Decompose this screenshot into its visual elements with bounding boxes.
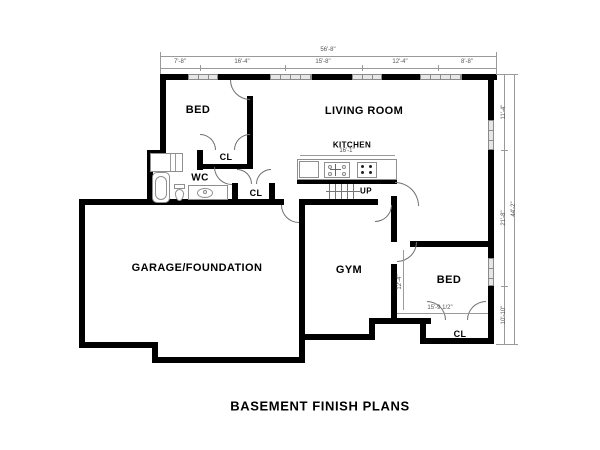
dim-top-seg-4: 12'-4" — [392, 59, 407, 65]
dim-tick — [501, 150, 508, 151]
basement-floor-plan: BED LIVING ROOM KITCHEN CL WC CL UP GARA… — [0, 0, 600, 450]
dim-line-top-overall — [160, 56, 497, 57]
room-label-bed-upper: BED — [186, 104, 210, 116]
wall-gym-top — [299, 199, 374, 205]
stove-divider — [335, 164, 336, 176]
utility-cabinet-line — [170, 154, 171, 171]
dim-tick — [496, 344, 518, 345]
room-label-closet-lower: CL — [454, 329, 467, 339]
stove-burner-icon — [342, 172, 346, 176]
dim-top-seg-3: 15'-8" — [315, 59, 330, 65]
stove-burner-icon — [342, 165, 346, 169]
cooktop-burner-icon — [369, 171, 372, 174]
cooktop — [357, 162, 377, 178]
dim-right-seg-2: 21'-8" — [501, 210, 507, 225]
door-arc-wc — [214, 167, 232, 185]
door-arc-garage — [281, 205, 299, 223]
dim-tick — [496, 52, 497, 74]
utility-cabinet — [150, 153, 183, 172]
stove-divider — [330, 169, 341, 170]
dim-tick — [362, 65, 363, 71]
window-right-lower — [488, 258, 494, 286]
wall-closet-mid-left — [232, 183, 238, 205]
window-living-1 — [270, 74, 312, 80]
door-arc-bed-lower — [397, 242, 417, 262]
room-label-garage: GARAGE/FOUNDATION — [132, 262, 263, 274]
dim-line-kitchen — [300, 155, 395, 156]
wall-bed-upper-right — [247, 96, 253, 168]
wall-gym-bottom — [299, 334, 375, 340]
dim-bed-lower-height: 12'-4" — [397, 274, 403, 289]
stair-direction-line — [326, 191, 360, 192]
dim-right-seg-1: 11'-4" — [501, 105, 507, 120]
room-label-closet-mid: CL — [250, 188, 263, 198]
cooktop-burner-icon — [369, 165, 372, 168]
wall-garage-left — [79, 199, 85, 348]
window-living-2 — [352, 74, 382, 80]
room-label-stairs-up: UP — [360, 187, 372, 196]
door-arc-gym — [375, 205, 392, 222]
dim-line-bed-lower-height — [403, 250, 404, 310]
dim-top-seg-5: 8'-8" — [461, 59, 473, 65]
wall-corridor-lower — [391, 264, 397, 324]
room-label-closet-upper: CL — [220, 152, 233, 162]
dim-tick — [496, 74, 518, 75]
utility-cabinet-line — [175, 154, 176, 171]
sink-drain-icon — [203, 190, 207, 194]
dim-right-overall: 44'-2" — [511, 201, 517, 216]
dim-tick — [200, 65, 201, 71]
dim-top-seg-2: 16'-4" — [234, 59, 249, 65]
cooktop-burner-icon — [361, 171, 364, 174]
wall-garage-bottom — [152, 357, 305, 363]
door-arc-closet-lower-right — [467, 301, 486, 320]
wall-bed-upper-left — [160, 74, 166, 156]
door-arc-closet-upper-left — [200, 134, 216, 150]
window-living-3 — [420, 74, 462, 80]
cooktop-burner-icon — [361, 165, 364, 168]
door-arc-corridor — [395, 182, 419, 206]
dim-top-overall: 56'-8" — [320, 47, 335, 53]
door-arc-closet-upper-right — [234, 134, 250, 150]
wall-bed-lower-top — [410, 241, 494, 247]
dim-tick — [438, 65, 439, 71]
room-label-bed-lower: BED — [437, 274, 461, 286]
wall-garage-bottom-left — [79, 342, 158, 348]
window-right-upper — [488, 120, 494, 150]
dim-top-seg-1: 7'-8" — [174, 59, 186, 65]
wall-right-exterior — [488, 74, 494, 344]
dim-right-seg-3: 10'-10" — [501, 306, 507, 325]
window-bed-upper — [188, 74, 218, 80]
room-label-wc: WC — [191, 173, 208, 184]
plan-title: BASEMENT FINISH PLANS — [230, 399, 409, 414]
door-arc-closet-mid-left — [237, 169, 252, 184]
wall-closet-mid-right — [269, 183, 275, 205]
dim-bed-lower-width: 15'-9 1/2" — [427, 305, 452, 311]
kitchen-sink — [299, 161, 319, 178]
bathtub-inner — [155, 176, 167, 200]
dim-line-top-segments — [160, 68, 497, 69]
dim-tick — [501, 286, 508, 287]
dim-kitchen-width: 16'-1" — [339, 148, 354, 154]
dim-line-bed-lower — [397, 313, 488, 314]
door-arc-bed-upper — [230, 80, 250, 100]
stove-burner-icon — [328, 172, 332, 176]
room-label-gym: GYM — [336, 264, 362, 276]
dim-tick — [160, 52, 161, 74]
room-label-living-room: LIVING ROOM — [325, 105, 403, 117]
door-arc-closet-mid-right — [256, 169, 271, 184]
dim-tick — [285, 65, 286, 71]
